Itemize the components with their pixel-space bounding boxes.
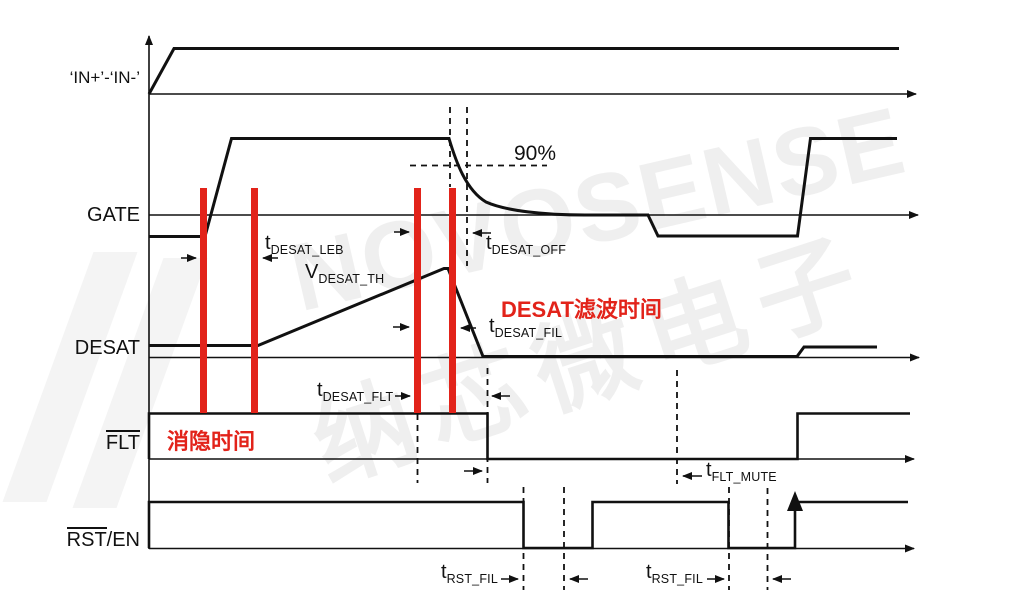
rst-en-suffix: /EN <box>107 529 140 551</box>
red-bar-2 <box>251 188 258 413</box>
red-bar-1 <box>200 188 207 413</box>
signal-label-desat: DESAT <box>24 337 140 360</box>
t-subscript: DESAT_LEB <box>271 243 344 257</box>
t-subscript: RST_FIL <box>447 572 498 586</box>
signal-label-in: ‘IN+’-‘IN-’ <box>24 68 140 88</box>
t-subscript: RST_FIL <box>652 572 703 586</box>
flt-waveform <box>149 414 910 460</box>
label-t-desat-off: tDESAT_OFF <box>486 232 566 257</box>
label-blanking-time: 消隐时间 <box>167 424 255 456</box>
t-subscript: DESAT_FIL <box>495 326 563 340</box>
t-subscript: DESAT_FLT <box>323 390 394 404</box>
red-bar-3 <box>414 188 421 413</box>
label-t-rst-fil-2: tRST_FIL <box>646 561 703 586</box>
t-subscript: FLT_MUTE <box>712 470 777 484</box>
label-90-percent: 90% <box>514 142 556 166</box>
signal-label-flt: FLT <box>24 430 140 455</box>
label-t-desat-leb: tDESAT_LEB <box>265 232 344 257</box>
flt-overlined-text: FLT <box>106 430 140 454</box>
timing-diagram: NOVOSENSE 纳芯微电子 <box>0 0 1027 612</box>
label-t-rst-fil-1: tRST_FIL <box>441 561 498 586</box>
rst-overlined-text: RST <box>67 527 107 551</box>
dimension-arrows <box>181 232 791 579</box>
v-subscript: DESAT_TH <box>318 272 384 286</box>
label-t-desat-flt: tDESAT_FLT <box>317 379 393 404</box>
red-bar-4 <box>449 188 456 413</box>
label-v-desat-th: VDESAT_TH <box>305 261 384 286</box>
v-symbol: V <box>305 261 318 283</box>
in-waveform <box>149 49 899 95</box>
t-subscript: DESAT_OFF <box>492 243 567 257</box>
signal-label-rst-en: RST/EN <box>24 527 140 552</box>
signal-label-gate: GATE <box>24 204 140 227</box>
label-desat-filter-time: DESAT滤波时间 <box>501 292 662 324</box>
label-t-flt-mute: tFLT_MUTE <box>706 459 777 484</box>
